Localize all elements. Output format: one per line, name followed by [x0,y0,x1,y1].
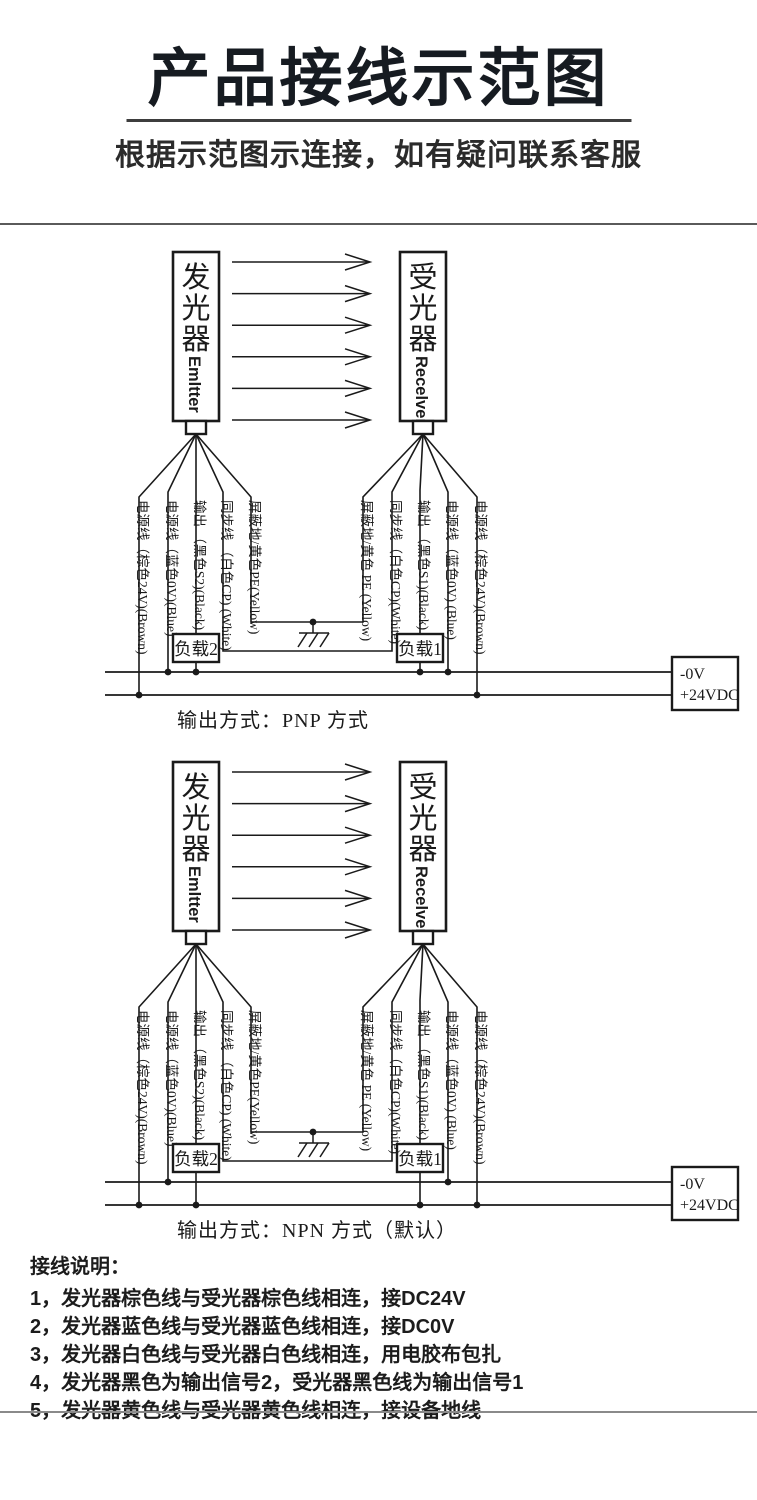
note-line: 1，发光器棕色线与受光器棕色线相连，接DC24V [30,1285,523,1313]
power-label-24v: +24VDC [680,687,739,704]
power-supply-box: -0V+24VDC [672,657,739,710]
note-line: 3，发光器白色线与受光器白色线相连，用电胶布包扎 [30,1341,523,1369]
wire-label-yellow: 屏蔽地/黄色PE(Yellow) [247,500,263,634]
wiring-notes: 接线说明： 1，发光器棕色线与受光器棕色线相连，接DC24V2，发光器蓝色线与受… [30,1250,523,1425]
power-supply-box: -0V+24VDC [672,1167,739,1220]
notes-heading: 接线说明： [30,1250,523,1279]
wiring-diagram-npn: -0V+24VDC发光器Emltter受光器Recelver负载2负载1电源线（… [0,740,757,1250]
svg-text:器: 器 [181,324,210,356]
product-wiring-page: 产品接线示范图 根据示范图示连接，如有疑问联系客服 -0V+24VDC发光器Em… [0,0,757,1500]
svg-text:受: 受 [408,261,437,294]
wire-label-blue: 电源线（蓝色0V) (Blue) [444,1010,460,1150]
wire-label-black: 输出 （黑色S1)(Black) [416,500,432,630]
svg-text:Recelver: Recelver [412,866,430,935]
emitter-box: 发光器Emltter [173,252,219,434]
wire-label-blue: 电源线（蓝色0V)(Blue) [164,500,180,636]
wire-label-brown: 电源线（棕色24V)(Brown) [473,500,489,655]
ground-icon [298,622,329,647]
diagram-svg-npn: -0V+24VDC发光器Emltter受光器Recelver负载2负载1电源线（… [0,740,757,1250]
connector-stub [413,931,433,944]
output-mode-caption: 输出方式：PNP 方式 [177,709,369,732]
wire-label-white: 同步线 （白色CP) (White) [219,1010,235,1161]
svg-text:发: 发 [181,261,210,294]
svg-text:光: 光 [181,802,210,835]
note-line: 2，发光器蓝色线与受光器蓝色线相连，接DC0V [30,1313,523,1341]
load2-box: 负载2 [173,634,219,662]
svg-text:负载1: 负载1 [398,639,442,659]
power-label-0v: -0V [680,1176,705,1193]
wire-label-brown: 电源线（棕色24V)(Brown) [135,500,151,655]
svg-text:器: 器 [408,834,437,866]
wire-label-black: 输出 （黑色S2)(Black) [192,500,208,630]
svg-text:光: 光 [181,292,210,325]
wire-label-white: 同步线 （白色CP) (White) [219,500,235,651]
power-rails [105,672,672,695]
wire-label-brown: 电源线（棕色24V)(Brown) [135,1010,151,1165]
page-title: 产品接线示范图 [0,28,757,119]
connector-stub [413,421,433,434]
wire-label-black: 输出 （黑色S1)(Black) [416,1010,432,1140]
power-label-24v: +24VDC [680,1197,739,1214]
receiver-box: 受光器Recelver [400,252,446,434]
title-underline [126,119,631,122]
wiring-diagram-pnp: -0V+24VDC发光器Emltter受光器Recelver负载2负载1电源线（… [0,230,757,740]
wire-label-yellow: 屏蔽地/黄色 PE (Yellow) [359,500,375,641]
wire-label-yellow: 屏蔽地/黄色PE(Yellow) [247,1010,263,1144]
wire-label-white: 同步线（白色CP)(White) [388,500,404,644]
beam-arrows [232,254,370,428]
connector-stub [186,931,206,944]
svg-text:器: 器 [181,834,210,866]
svg-text:Emltter: Emltter [185,866,203,923]
wire-label-brown: 电源线（棕色24V)(Brown) [473,1010,489,1165]
svg-text:受: 受 [408,771,437,804]
svg-text:Emltter: Emltter [185,356,203,413]
output-mode-caption: 输出方式：NPN 方式（默认） [177,1219,457,1242]
wire-label-black: 输出 （黑色S2)(Black) [192,1010,208,1140]
beam-arrows [232,764,370,938]
svg-text:光: 光 [408,292,437,325]
emitter-box: 发光器Emltter [173,762,219,944]
note-line: 4，发光器黑色为输出信号2，受光器黑色线为输出信号1 [30,1369,523,1397]
wire-labels: 电源线（棕色24V)(Brown)电源线（蓝色0V)(Blue)输出 （黑色S2… [135,1010,489,1165]
svg-text:光: 光 [408,802,437,835]
load2-box: 负载2 [173,1144,219,1172]
svg-text:Recelver: Recelver [412,356,430,425]
diagram-svg-pnp: -0V+24VDC发光器Emltter受光器Recelver负载2负载1电源线（… [0,230,757,740]
svg-text:负载1: 负载1 [398,1149,442,1169]
connector-stub [186,421,206,434]
power-rails [105,1182,672,1205]
page-subtitle: 根据示范图示连接，如有疑问联系客服 [0,130,757,174]
top-divider [0,223,757,225]
notes-list: 1，发光器棕色线与受光器棕色线相连，接DC24V2，发光器蓝色线与受光器蓝色线相… [30,1285,523,1425]
svg-text:发: 发 [181,771,210,804]
wire-label-blue: 电源线（蓝色0V) (Blue) [444,500,460,640]
bottom-divider [0,1411,757,1413]
wire-labels: 电源线（棕色24V)(Brown)电源线（蓝色0V)(Blue)输出 （黑色S2… [135,500,489,655]
svg-text:负载2: 负载2 [174,639,218,659]
wire-label-white: 同步线（白色CP)(White) [388,1010,404,1154]
wire-label-yellow: 屏蔽地/黄色 PE (Yellow) [359,1010,375,1151]
svg-text:器: 器 [408,324,437,356]
power-label-0v: -0V [680,666,705,683]
wire-label-blue: 电源线（蓝色0V)(Blue) [164,1010,180,1146]
ground-icon [298,1132,329,1157]
receiver-box: 受光器Recelver [400,762,446,944]
svg-text:负载2: 负载2 [174,1149,218,1169]
